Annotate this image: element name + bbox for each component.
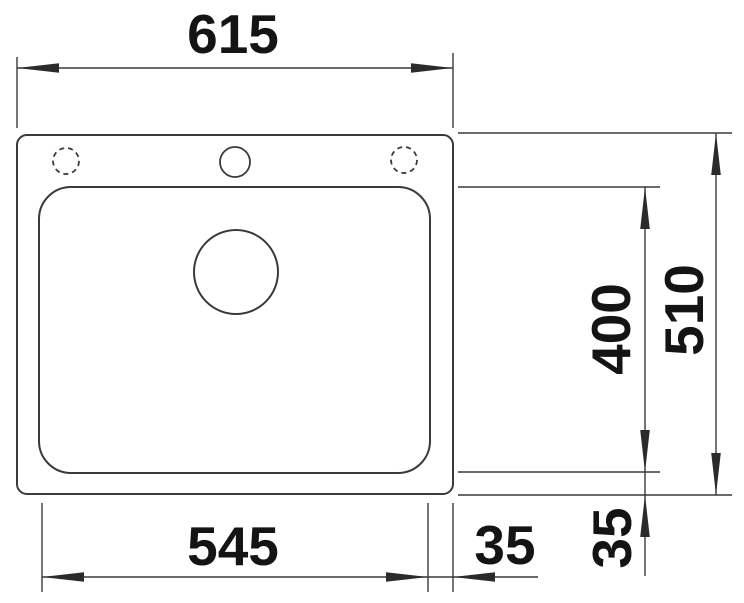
sink-body (17, 135, 453, 494)
dim-label-bowl-width: 545 (187, 515, 279, 577)
arrowhead-left (42, 572, 84, 582)
dim-bowl-width-and-offset: 545 35 (42, 503, 538, 592)
technical-drawing-canvas: 615 545 35 510 (0, 0, 744, 603)
dim-label-bowl-side-offset: 35 (474, 514, 535, 576)
arrowhead-left (17, 63, 59, 73)
dim-label-overall-width: 615 (187, 3, 279, 65)
arrowhead-right (386, 572, 428, 582)
dim-overall-width: 615 (17, 3, 453, 128)
drain-hole (194, 230, 278, 314)
arrowhead-top (640, 187, 650, 229)
tap-hole-center (220, 147, 250, 177)
arrowhead-top (711, 133, 721, 175)
tap-hole-left-optional (53, 148, 79, 174)
tap-hole-right-optional (391, 147, 417, 173)
sink-dimension-drawing: 615 545 35 510 (0, 0, 744, 603)
dim-label-bowl-depth: 400 (580, 283, 642, 375)
dim-label-overall-depth: 510 (653, 264, 715, 356)
arrowhead-right (411, 63, 453, 73)
dim-label-bowl-bottom-offset: 35 (581, 507, 643, 568)
arrowhead-bottom (640, 430, 650, 472)
arrowhead-bottom (711, 453, 721, 495)
